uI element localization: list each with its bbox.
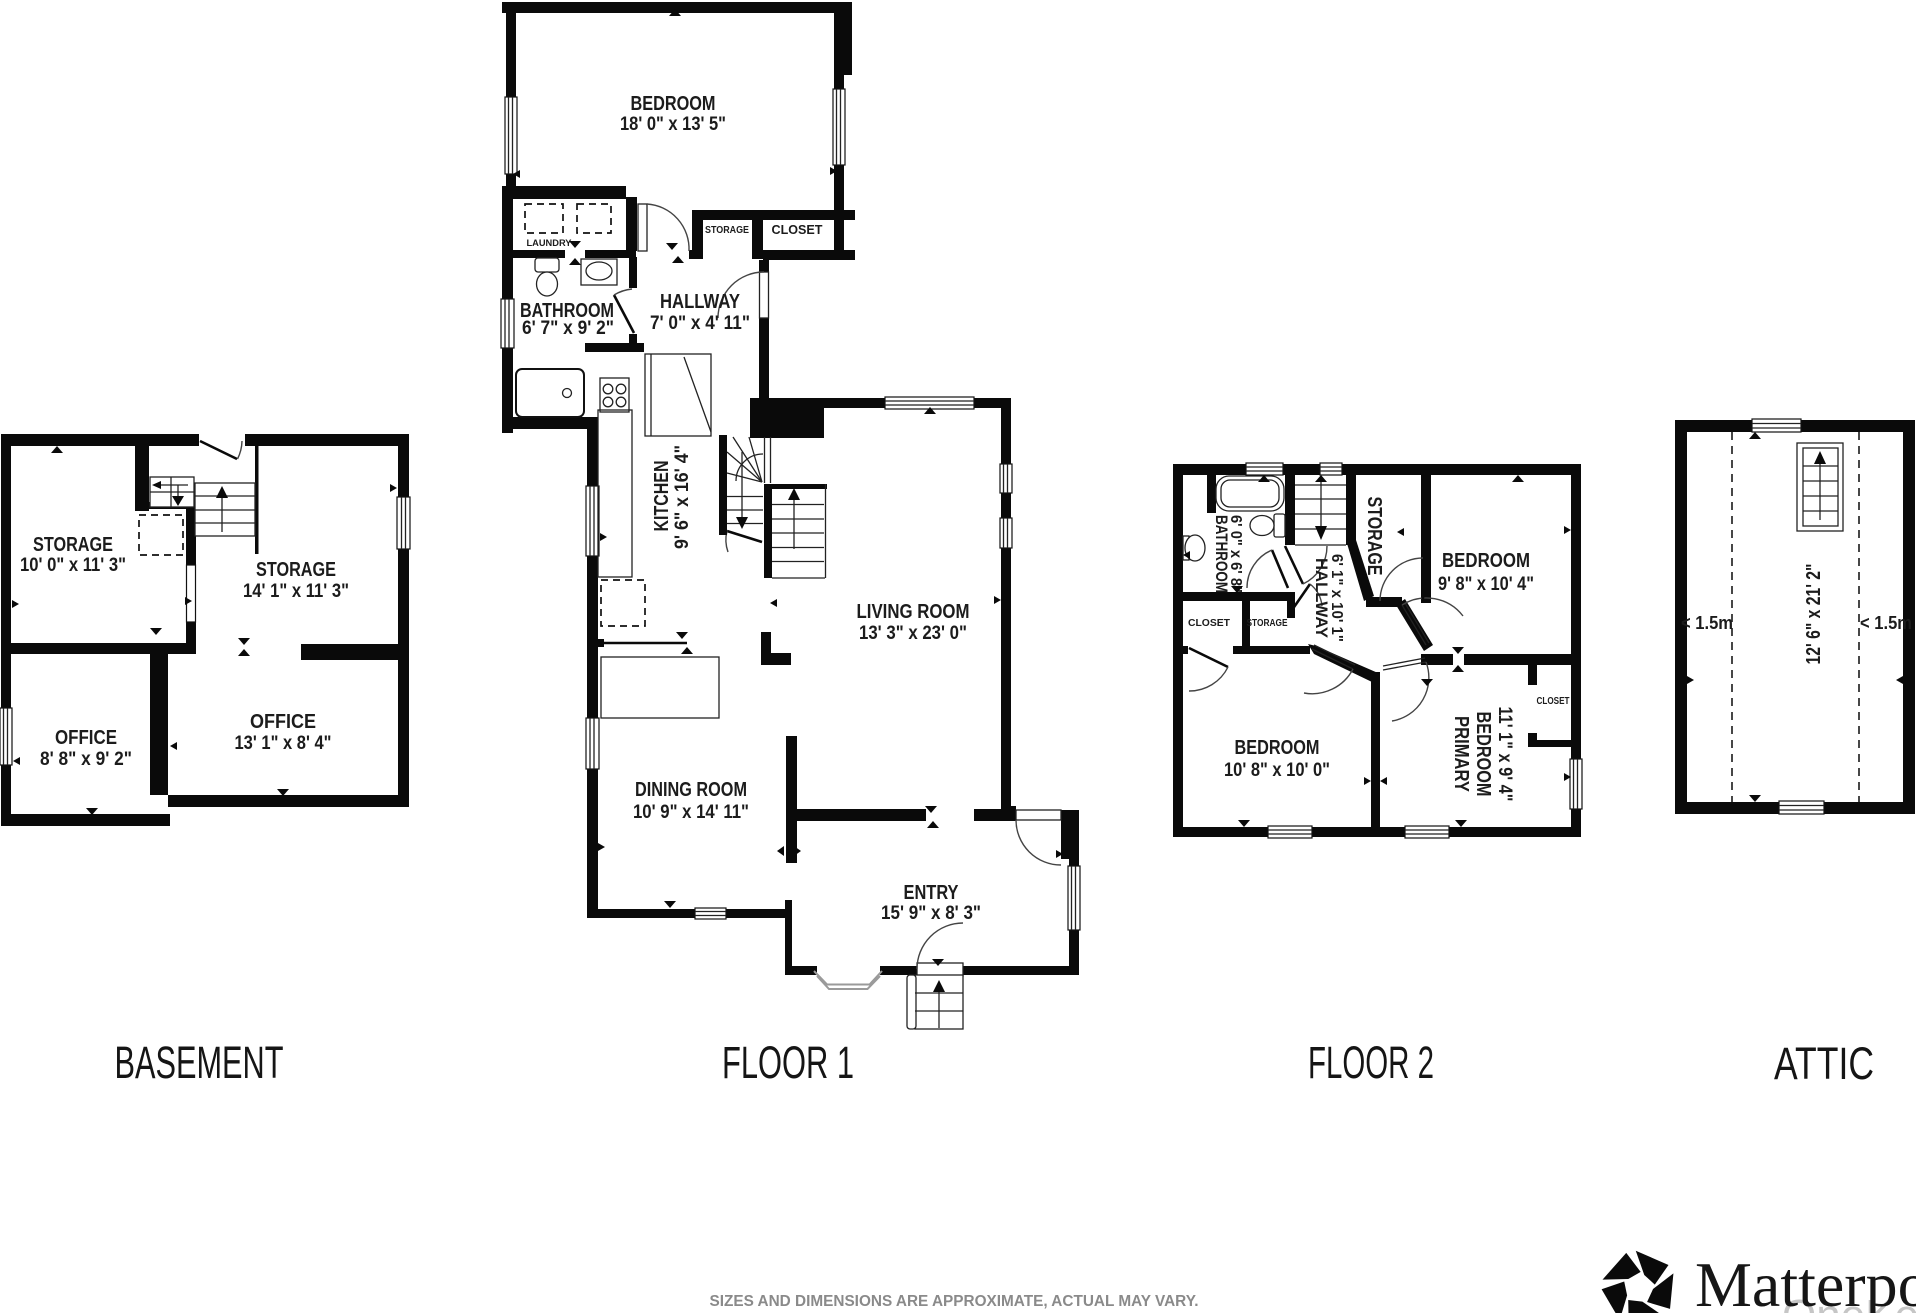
svg-text:9' 6" x 16' 4": 9' 6" x 16' 4" — [672, 445, 693, 549]
svg-text:BEDROOM: BEDROOM — [631, 93, 716, 115]
svg-text:< 1.5m: < 1.5m — [1681, 613, 1733, 633]
svg-text:Matterport: Matterport — [1695, 1249, 1916, 1313]
svg-text:KITCHEN: KITCHEN — [651, 461, 673, 532]
svg-text:CLOSET: CLOSET — [1537, 695, 1570, 707]
svg-text:15' 9" x 8' 3": 15' 9" x 8' 3" — [881, 903, 981, 924]
svg-text:SIZES AND DIMENSIONS ARE APPRO: SIZES AND DIMENSIONS ARE APPROXIMATE, AC… — [710, 1293, 1199, 1310]
svg-text:FLOOR 1: FLOOR 1 — [722, 1037, 854, 1088]
svg-text:STORAGE: STORAGE — [1363, 497, 1385, 576]
svg-text:BEDROOM: BEDROOM — [1442, 550, 1530, 572]
svg-text:PRIMARY: PRIMARY — [1450, 716, 1472, 793]
svg-text:ATTIC: ATTIC — [1774, 1038, 1874, 1089]
svg-text:CLOSET: CLOSET — [1188, 617, 1231, 629]
svg-text:10' 0" x 11' 3": 10' 0" x 11' 3" — [20, 555, 126, 576]
svg-text:LAUNDRY: LAUNDRY — [527, 238, 573, 249]
svg-text:STORAGE: STORAGE — [1247, 617, 1288, 629]
svg-text:13' 1" x 8' 4": 13' 1" x 8' 4" — [235, 733, 332, 754]
svg-text:7' 0" x 4' 11": 7' 0" x 4' 11" — [650, 313, 750, 334]
svg-text:14' 1" x 11' 3": 14' 1" x 11' 3" — [243, 581, 349, 602]
svg-text:BASEMENT: BASEMENT — [115, 1037, 284, 1088]
svg-text:< 1.5m: < 1.5m — [1860, 613, 1912, 633]
svg-text:STORAGE: STORAGE — [33, 534, 113, 556]
svg-text:11' 1" x 9' 4": 11' 1" x 9' 4" — [1494, 707, 1515, 802]
svg-text:8' 8" x 9' 2": 8' 8" x 9' 2" — [40, 749, 132, 770]
svg-text:FLOOR 2: FLOOR 2 — [1308, 1037, 1434, 1088]
svg-text:OFFICE: OFFICE — [55, 727, 117, 749]
svg-text:OFFICE: OFFICE — [250, 711, 316, 733]
svg-text:BEDROOM: BEDROOM — [1472, 712, 1494, 797]
svg-text:6' 7" x 9' 2": 6' 7" x 9' 2" — [522, 318, 614, 339]
svg-text:DINING ROOM: DINING ROOM — [635, 779, 747, 801]
svg-text:10' 8" x 10' 0": 10' 8" x 10' 0" — [1224, 760, 1330, 781]
svg-text:STORAGE: STORAGE — [256, 559, 336, 581]
svg-text:6' 1" x 10' 1": 6' 1" x 10' 1" — [1328, 554, 1345, 642]
svg-text:BEDROOM: BEDROOM — [1235, 737, 1320, 759]
svg-text:CLOSET: CLOSET — [772, 222, 823, 237]
svg-text:10' 9" x 14' 11": 10' 9" x 14' 11" — [633, 802, 749, 823]
svg-text:ENTRY: ENTRY — [904, 882, 960, 904]
svg-text:LIVING ROOM: LIVING ROOM — [857, 601, 970, 623]
svg-text:6' 0" x 6' 8": 6' 0" x 6' 8" — [1227, 515, 1244, 593]
svg-text:HALLWAY: HALLWAY — [660, 291, 741, 313]
svg-text:13' 3" x 23' 0": 13' 3" x 23' 0" — [859, 623, 967, 644]
svg-text:18' 0" x 13' 5": 18' 0" x 13' 5" — [620, 114, 726, 135]
svg-text:9' 8" x 10' 4": 9' 8" x 10' 4" — [1438, 574, 1534, 595]
svg-text:STORAGE: STORAGE — [705, 224, 749, 236]
svg-text:12' 6" x 21' 2": 12' 6" x 21' 2" — [1803, 564, 1825, 665]
